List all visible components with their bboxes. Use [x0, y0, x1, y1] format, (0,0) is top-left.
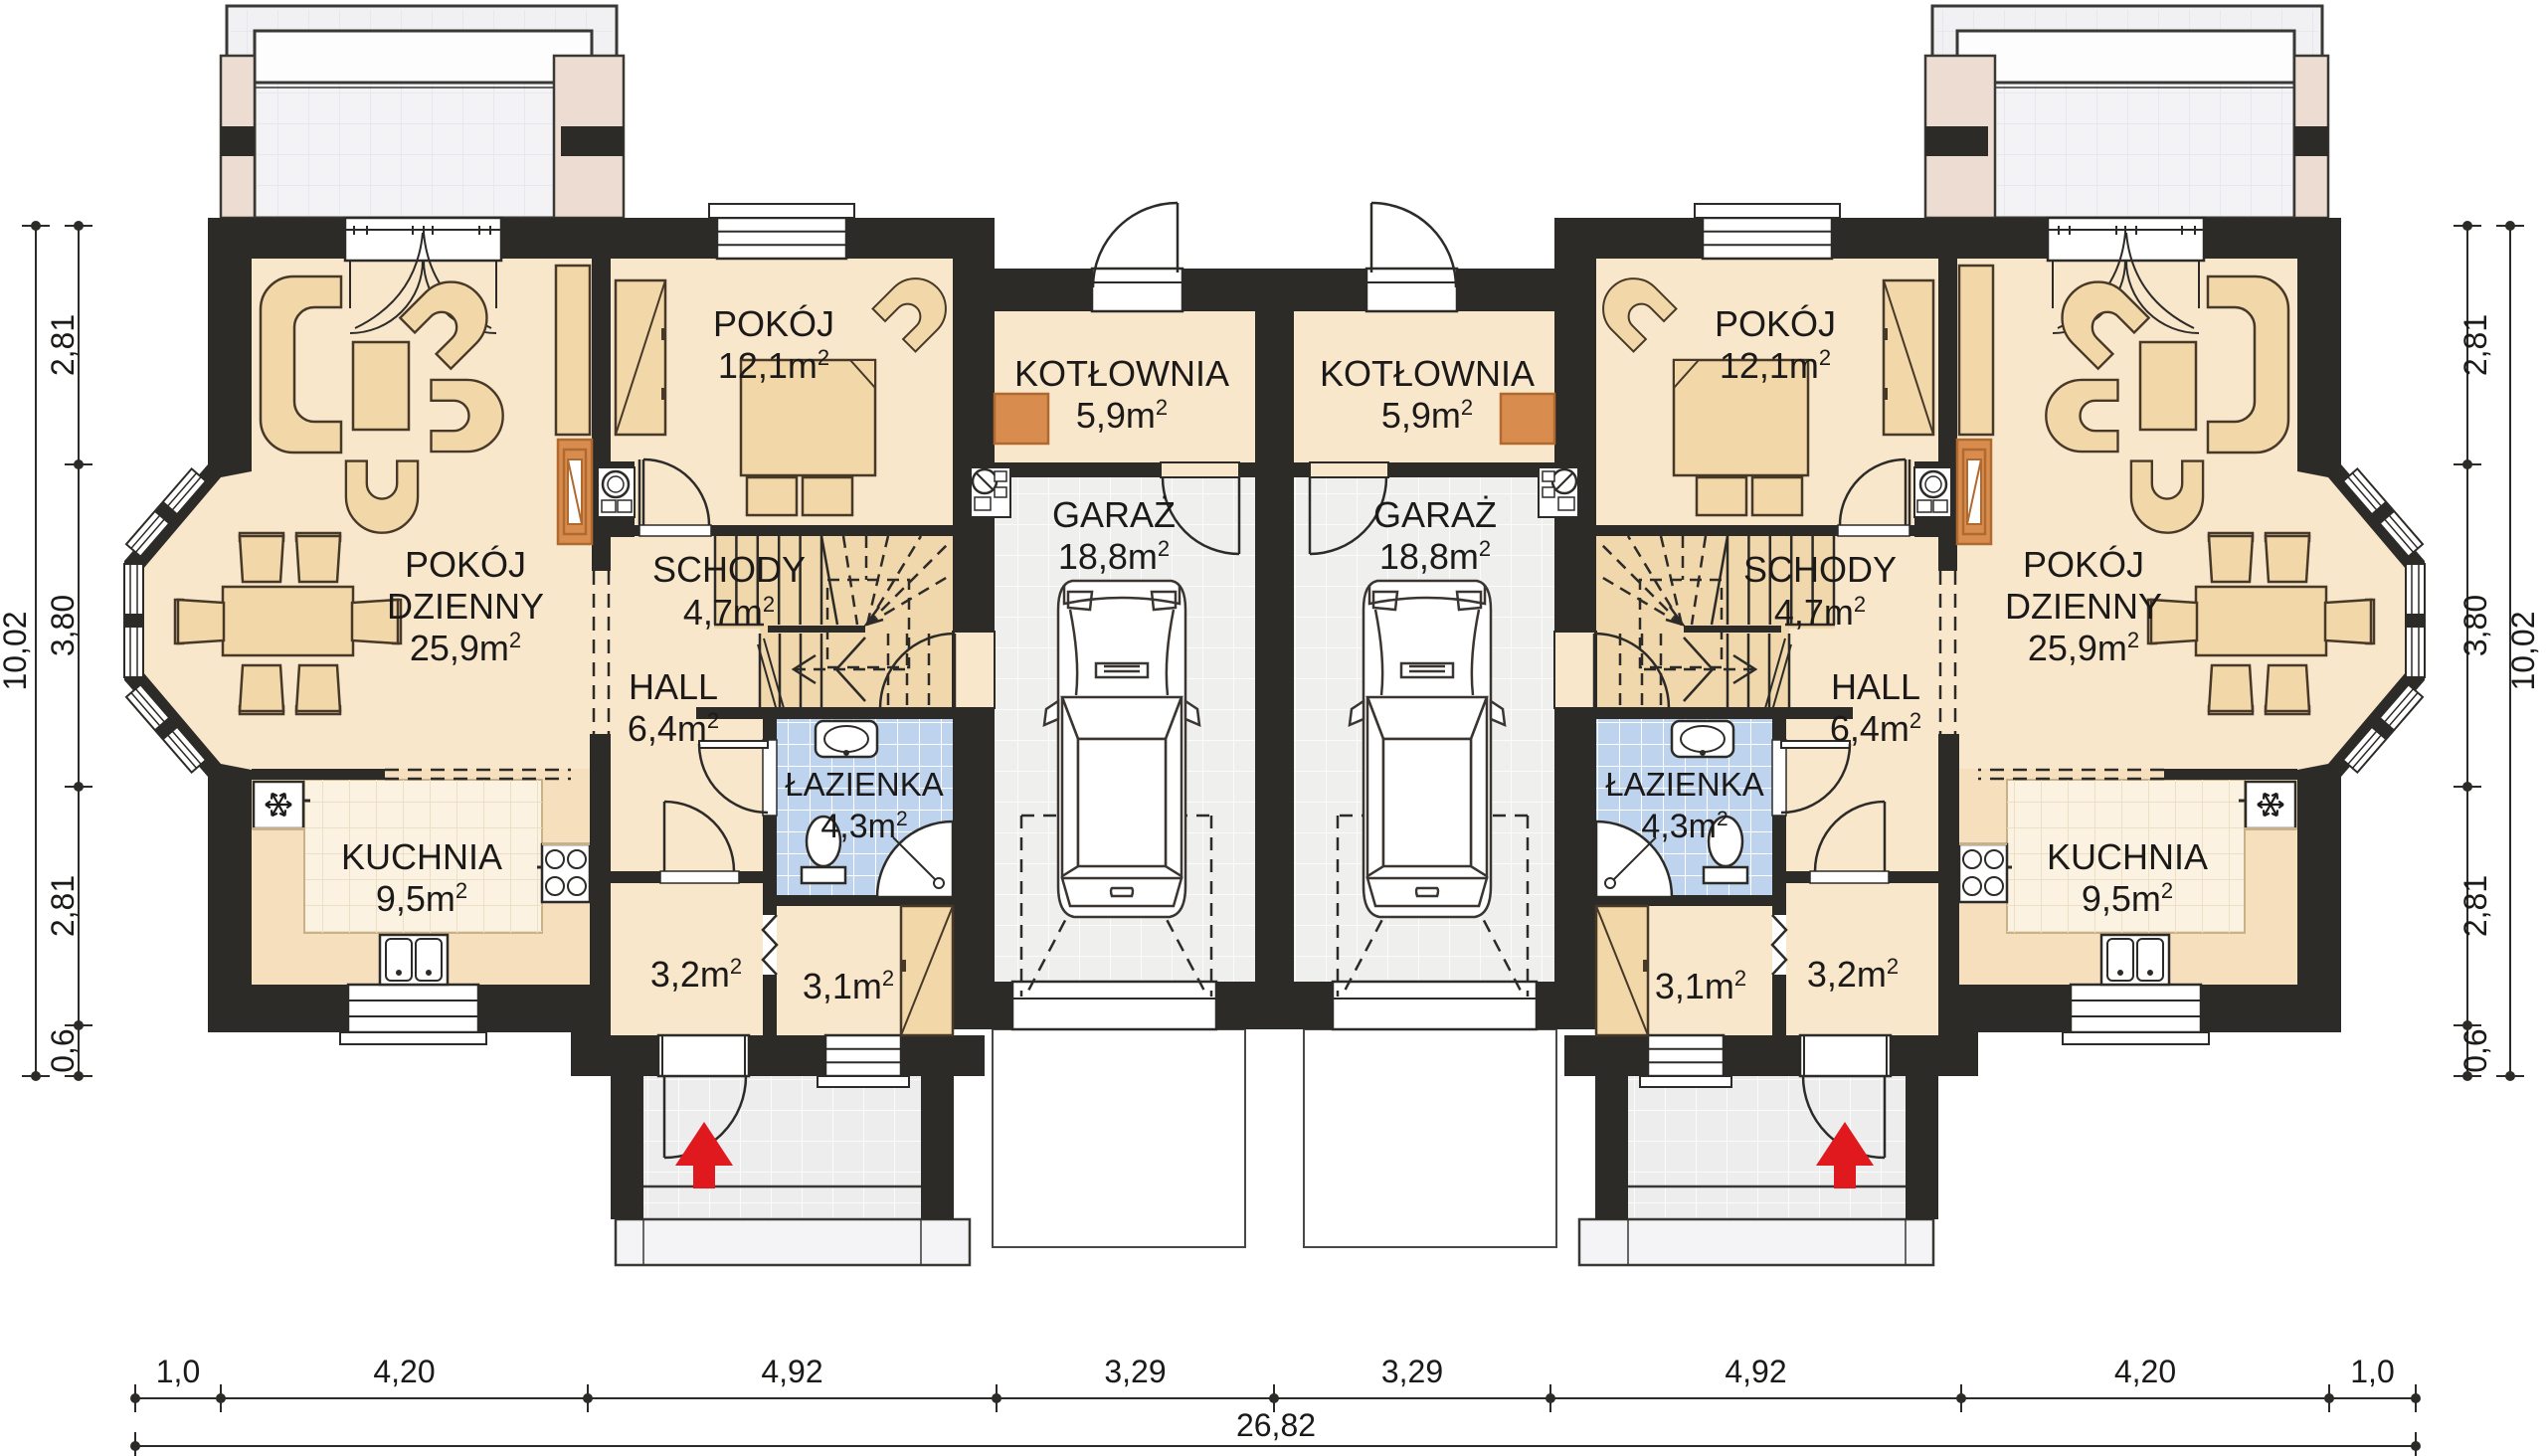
- svg-text:4,3m2: 4,3m2: [820, 808, 907, 845]
- svg-text:4,7m2: 4,7m2: [1774, 592, 1866, 633]
- svg-text:10,02: 10,02: [0, 611, 33, 690]
- svg-text:3,1m2: 3,1m2: [1655, 966, 1746, 1006]
- svg-text:25,9m2: 25,9m2: [2028, 628, 2139, 668]
- svg-text:2,81: 2,81: [45, 314, 81, 376]
- svg-text:2,81: 2,81: [2457, 875, 2493, 937]
- svg-text:3,29: 3,29: [1104, 1354, 1166, 1389]
- svg-text:KUCHNIA: KUCHNIA: [2047, 836, 2208, 877]
- svg-text:DZIENNY: DZIENNY: [2005, 586, 2162, 627]
- svg-text:4,3m2: 4,3m2: [1641, 808, 1728, 845]
- svg-text:26,82: 26,82: [1236, 1407, 1316, 1443]
- svg-text:DZIENNY: DZIENNY: [387, 586, 544, 627]
- svg-text:4,20: 4,20: [373, 1354, 435, 1389]
- svg-text:4,7m2: 4,7m2: [683, 592, 775, 633]
- svg-text:KUCHNIA: KUCHNIA: [341, 836, 502, 877]
- svg-text:KOTŁOWNIA: KOTŁOWNIA: [1320, 353, 1535, 394]
- svg-text:SCHODY: SCHODY: [652, 549, 806, 590]
- svg-text:9,5m2: 9,5m2: [376, 878, 467, 919]
- svg-text:SCHODY: SCHODY: [1743, 549, 1897, 590]
- svg-text:ŁAZIENKA: ŁAZIENKA: [785, 766, 944, 803]
- svg-text:KOTŁOWNIA: KOTŁOWNIA: [1014, 353, 1229, 394]
- svg-text:1,0: 1,0: [2350, 1354, 2394, 1389]
- svg-text:6,4m2: 6,4m2: [628, 708, 719, 749]
- svg-text:POKÓJ: POKÓJ: [713, 303, 834, 344]
- svg-text:10,02: 10,02: [2505, 611, 2541, 690]
- svg-text:1,0: 1,0: [156, 1354, 200, 1389]
- svg-text:5,9m2: 5,9m2: [1076, 395, 1168, 436]
- svg-text:4,92: 4,92: [761, 1354, 822, 1389]
- svg-text:3,2m2: 3,2m2: [1807, 954, 1899, 995]
- svg-text:2,81: 2,81: [2457, 314, 2493, 376]
- svg-text:3,29: 3,29: [1381, 1354, 1443, 1389]
- svg-text:18,8m2: 18,8m2: [1379, 536, 1491, 577]
- svg-text:HALL: HALL: [1831, 666, 1920, 707]
- svg-text:GARAŻ: GARAŻ: [1373, 494, 1497, 535]
- svg-text:4,92: 4,92: [1725, 1354, 1786, 1389]
- svg-text:GARAŻ: GARAŻ: [1052, 494, 1176, 535]
- svg-text:3,2m2: 3,2m2: [650, 954, 742, 995]
- svg-text:18,8m2: 18,8m2: [1058, 536, 1170, 577]
- svg-text:2,81: 2,81: [45, 875, 81, 937]
- svg-text:3,80: 3,80: [2457, 595, 2493, 656]
- svg-text:ŁAZIENKA: ŁAZIENKA: [1605, 766, 1764, 803]
- svg-text:6,4m2: 6,4m2: [1830, 708, 1921, 749]
- svg-text:POKÓJ: POKÓJ: [1715, 303, 1836, 344]
- svg-text:4,20: 4,20: [2114, 1354, 2176, 1389]
- svg-text:0,6: 0,6: [45, 1028, 81, 1072]
- svg-text:25,9m2: 25,9m2: [410, 628, 521, 668]
- svg-text:3,80: 3,80: [45, 595, 81, 656]
- svg-text:0,6: 0,6: [2457, 1028, 2493, 1072]
- svg-text:12,1m2: 12,1m2: [1720, 345, 1831, 386]
- svg-text:POKÓJ: POKÓJ: [405, 544, 526, 585]
- svg-text:POKÓJ: POKÓJ: [2023, 544, 2144, 585]
- svg-text:3,1m2: 3,1m2: [803, 966, 894, 1006]
- svg-text:12,1m2: 12,1m2: [718, 345, 829, 386]
- svg-text:9,5m2: 9,5m2: [2082, 878, 2173, 919]
- svg-text:5,9m2: 5,9m2: [1381, 395, 1473, 436]
- svg-text:HALL: HALL: [629, 666, 718, 707]
